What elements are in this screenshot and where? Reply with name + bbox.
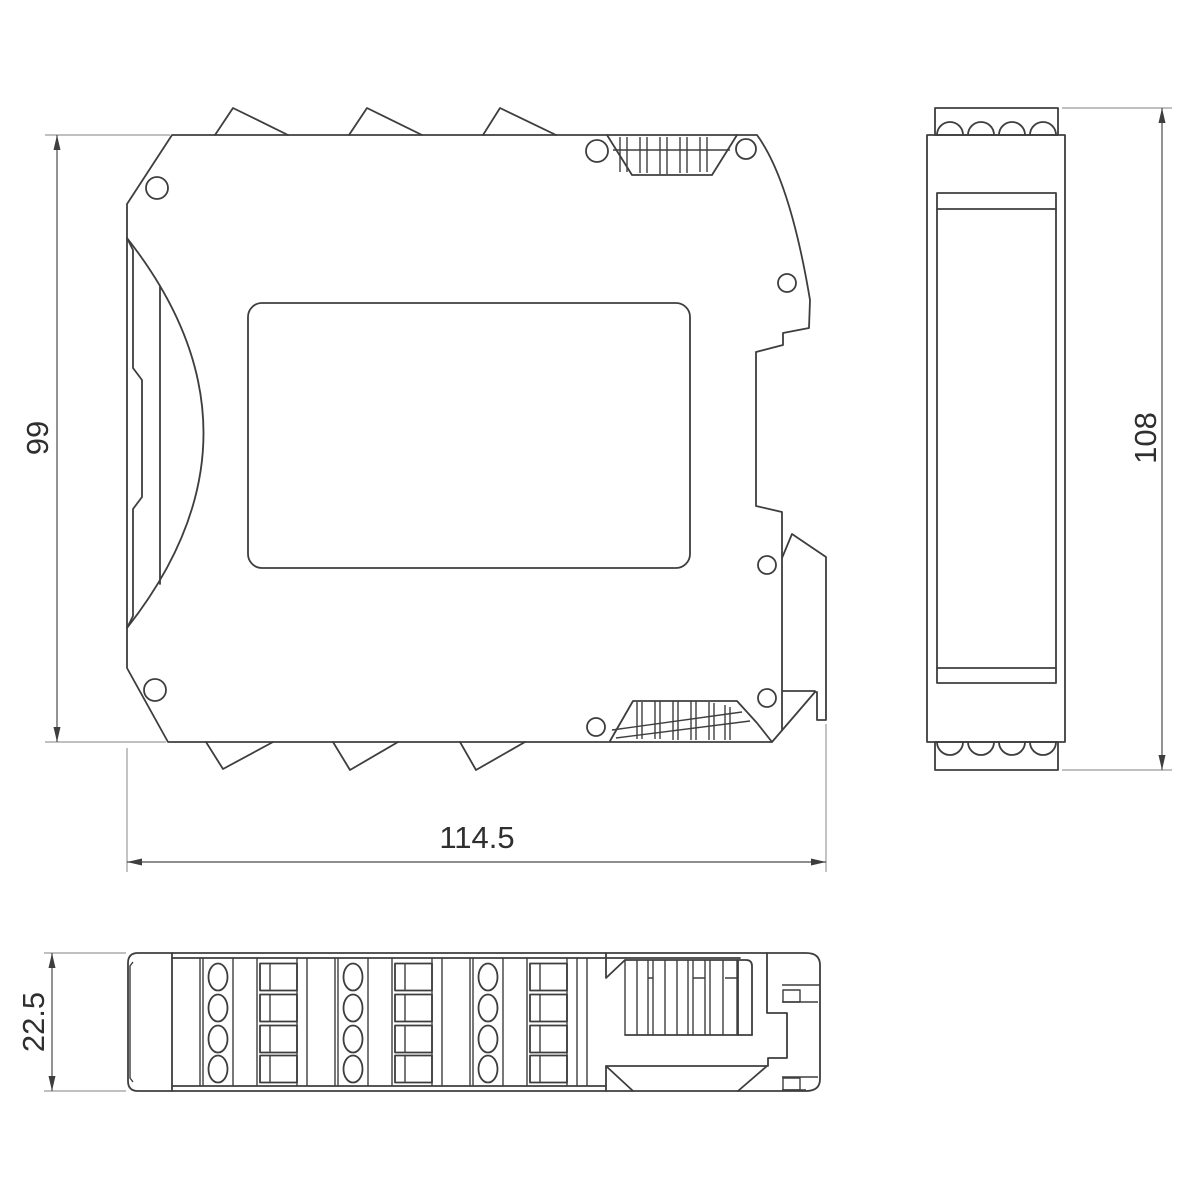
screw-hole <box>344 964 363 991</box>
extension-lines <box>44 953 126 1091</box>
arrow-down-icon <box>54 727 61 742</box>
terminal-block-bottom <box>935 742 1058 770</box>
terminal-screws-bottom <box>937 742 1056 755</box>
wire-entry <box>260 964 297 991</box>
arrow-up-icon <box>1159 108 1166 123</box>
mounting-hole <box>144 679 166 701</box>
vent-comb-bottom <box>610 701 772 742</box>
screw-hole <box>479 1056 498 1083</box>
wire-entry <box>395 1056 432 1083</box>
screw-hole <box>344 995 363 1022</box>
terminal-group <box>200 958 307 1086</box>
mounting-hole <box>587 718 605 736</box>
mounting-hole <box>778 274 796 292</box>
dimension-label-side-width: 114.5 <box>439 820 514 855</box>
screw-hole <box>344 1026 363 1053</box>
wire-entry <box>530 1026 567 1053</box>
housing-outline <box>127 135 826 742</box>
arrow-down-icon <box>1159 755 1166 770</box>
front-panel-lines <box>937 209 1056 668</box>
screw-hole <box>344 1056 363 1083</box>
drawing-page: 99 114.5 108 22.5 <box>0 0 1200 1200</box>
dimension-side-height: 99 <box>20 135 170 742</box>
screw-hole <box>479 995 498 1022</box>
rail-dovetail <box>606 1066 767 1091</box>
wire-entry <box>395 964 432 991</box>
mounting-hole <box>146 177 168 199</box>
wire-entry <box>530 964 567 991</box>
clip-hook <box>783 1078 800 1090</box>
arrow-left-icon <box>127 859 142 866</box>
mounting-hole <box>758 689 776 707</box>
mounting-hole <box>758 556 776 574</box>
wire-entry <box>530 1056 567 1083</box>
dimension-side-width: 114.5 <box>127 724 826 872</box>
arrow-down-icon <box>49 1076 56 1091</box>
wire-entry <box>260 1056 297 1083</box>
screw-hole <box>209 964 228 991</box>
front-body <box>927 135 1065 742</box>
screw-hole <box>209 1026 228 1053</box>
extension-lines <box>45 135 170 742</box>
vent-comb-top <box>607 135 737 175</box>
mounting-hole <box>736 139 756 159</box>
technical-drawing: 99 114.5 108 22.5 <box>0 0 1200 1200</box>
clip-hook <box>783 990 800 1002</box>
terminal-block-top <box>935 108 1058 135</box>
dimension-label-front-height: 108 <box>1128 412 1163 464</box>
sawtooth-tabs-bottom <box>206 742 525 770</box>
sawtooth-tabs-top <box>215 108 556 135</box>
dimension-label-top-depth: 22.5 <box>16 992 51 1052</box>
wire-entry <box>260 1026 297 1053</box>
side-view <box>127 108 826 770</box>
din-clip-bracket <box>767 953 820 1090</box>
screw-hole <box>209 1056 228 1083</box>
label-window <box>248 303 690 568</box>
screw-hole <box>209 995 228 1022</box>
wire-entry <box>395 1026 432 1053</box>
front-view <box>927 108 1065 770</box>
screw-hole <box>479 1026 498 1053</box>
front-panel <box>937 193 1056 683</box>
end-cap <box>128 953 172 1091</box>
arrow-up-icon <box>49 953 56 968</box>
vent-comb-topview <box>606 953 752 1035</box>
end-cap-inner <box>130 962 133 1082</box>
arrow-up-icon <box>54 135 61 150</box>
screw-hole <box>479 964 498 991</box>
dimension-top-depth: 22.5 <box>16 953 126 1091</box>
arrow-right-icon <box>811 859 826 866</box>
terminal-group <box>470 958 587 1086</box>
dimension-label-side-height: 99 <box>20 421 55 455</box>
wire-entry <box>260 995 297 1022</box>
front-face-curve <box>127 238 204 628</box>
terminal-screws-top <box>937 122 1056 135</box>
mounting-hole <box>586 140 608 162</box>
mounting-holes <box>144 139 796 736</box>
din-clip-lines <box>782 558 815 730</box>
wire-entry <box>530 995 567 1022</box>
top-view <box>128 953 820 1091</box>
dimension-front-height: 108 <box>1062 108 1172 770</box>
terminal-group <box>335 958 442 1086</box>
wire-entry <box>395 995 432 1022</box>
